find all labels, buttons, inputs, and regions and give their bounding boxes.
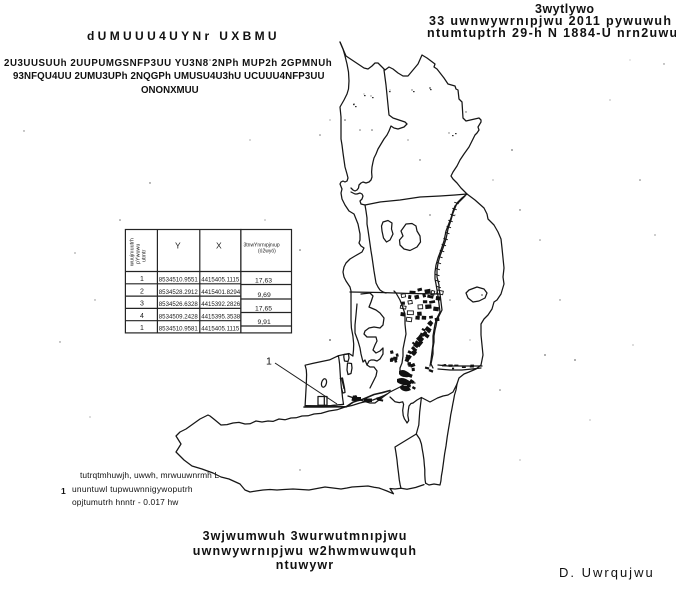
svg-text:4415395.3538: 4415395.3538: [201, 313, 241, 320]
svg-text:17,65: 17,65: [255, 306, 272, 313]
svg-text:8534510.9581: 8534510.9581: [159, 326, 199, 333]
svg-text:17,63: 17,63: [255, 278, 272, 285]
svg-text:4415405.1115: 4415405.1115: [201, 277, 240, 284]
svg-text:8534510.9551: 8534510.9551: [159, 277, 199, 284]
svg-text:1: 1: [266, 356, 272, 368]
svg-text:utmtr: utmtr: [142, 250, 148, 262]
svg-text:1: 1: [140, 276, 144, 283]
svg-text:8534509.2428: 8534509.2428: [159, 313, 199, 320]
svg-text:4415392.2826: 4415392.2826: [201, 301, 241, 308]
svg-text:8534526.6328: 8534526.6328: [159, 301, 199, 308]
svg-text:3: 3: [140, 301, 144, 308]
svg-text:1: 1: [140, 325, 144, 332]
svg-text:9,91: 9,91: [258, 319, 271, 326]
svg-text:X: X: [216, 241, 222, 251]
svg-text:Y: Y: [175, 241, 181, 251]
svg-text:8534528.2912: 8534528.2912: [159, 289, 199, 296]
svg-text:9,69: 9,69: [258, 292, 271, 299]
svg-text:4: 4: [140, 313, 144, 320]
svg-text:4415405.1115: 4415405.1115: [201, 326, 240, 333]
svg-text:(ó2wyó): (ó2wyó): [258, 249, 276, 255]
svg-text:4415401.8294: 4415401.8294: [201, 289, 241, 296]
svg-text:2: 2: [140, 288, 144, 295]
